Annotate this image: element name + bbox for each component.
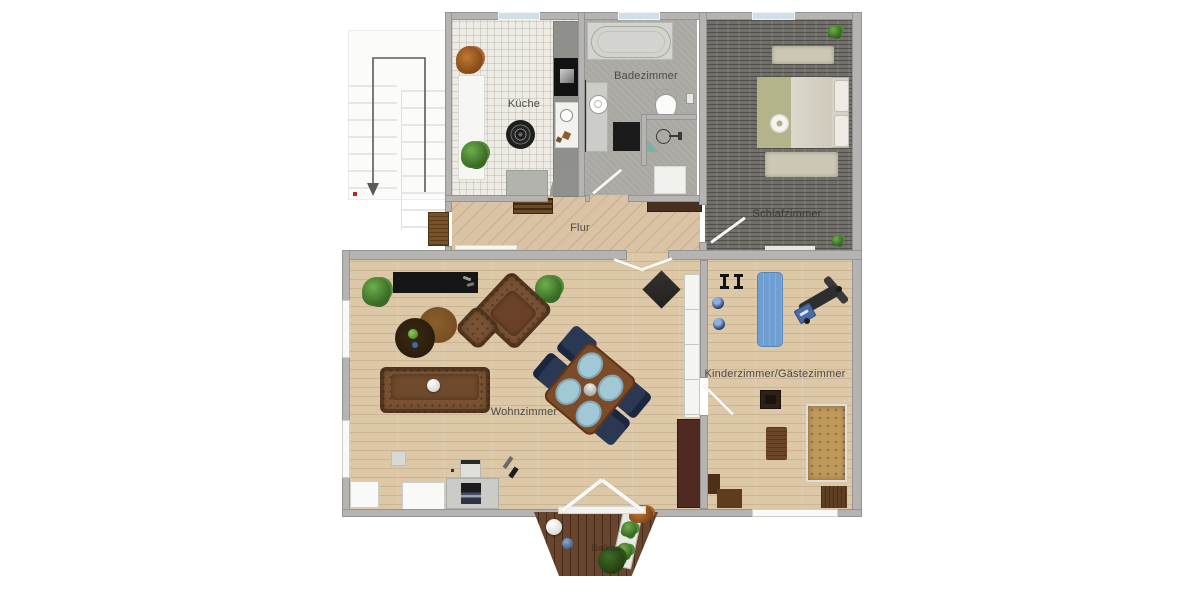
bed-blanket (757, 77, 791, 148)
kidsroom-doormat (821, 486, 847, 508)
dumbbell-icon (734, 274, 743, 289)
bathtub-inner-rim (597, 31, 665, 53)
room-label-wohnzimmer: Wohnzimmer (491, 406, 558, 418)
room-label-kinderzimmer: Kinderzimmer/Gästezimmer (704, 368, 845, 380)
bath-mat-black (613, 122, 640, 151)
small-floor-object (451, 469, 454, 472)
kitchen-plant-icon (461, 141, 488, 168)
dumbbell-icon (720, 274, 729, 289)
window-living-left (342, 300, 350, 358)
machine-wheel (836, 286, 842, 292)
window-sill (350, 481, 379, 508)
wall-left-upper (445, 12, 452, 212)
bedroom-rug-top (772, 46, 834, 64)
shower-wall-vertical (641, 114, 647, 166)
wall-shelf-white (684, 274, 700, 418)
bathtub-surround (587, 22, 673, 60)
balcony-ball-blue (562, 538, 573, 549)
bedroom-plant-small-icon (832, 235, 843, 246)
bathtub (591, 26, 671, 58)
wall-middle-band (342, 250, 627, 260)
wall-kitchen-bottom (445, 195, 548, 202)
double-bed (757, 77, 849, 148)
bedroom-plant-icon (828, 25, 842, 38)
sink-basin (560, 109, 573, 122)
floor-stool-small (391, 451, 406, 466)
daybed-tufted (806, 404, 847, 482)
wall-middle-band (668, 250, 862, 260)
bathroom-counter (586, 82, 608, 152)
kidsroom-rug (766, 427, 787, 460)
balcony-ball-white (546, 519, 562, 535)
desk-chair (460, 459, 481, 478)
dried-plant-icon (456, 46, 483, 74)
kitchen-sink (555, 102, 580, 148)
remote-control (467, 282, 475, 287)
round-rug-dark (395, 318, 435, 358)
blue-ball (412, 342, 418, 348)
exercise-machine (790, 278, 852, 340)
oven-window (560, 69, 574, 83)
shower-head-icon (656, 128, 684, 146)
kitchen-mat (506, 170, 548, 196)
exercise-ball (712, 297, 724, 309)
bed-duvet (791, 77, 832, 148)
floor-plan: Küche Badezimmer Schlafzimmer Flur Wohnz… (0, 0, 1200, 600)
wall-living-kids (700, 260, 708, 378)
shower-wall-horizontal (641, 114, 697, 120)
bedroom-rug-bottom (765, 152, 838, 177)
tv-sideboard (393, 272, 478, 293)
bread-items (562, 131, 571, 140)
bed-pillow (834, 80, 849, 112)
knife-object (504, 456, 518, 480)
exercise-mat-blue (757, 272, 783, 347)
window-kitchen (498, 12, 540, 20)
machine-wheel (804, 318, 810, 324)
wall-right (852, 12, 862, 517)
sofa-decor-ball (427, 379, 440, 392)
wall-living-kids (700, 415, 708, 509)
bathroom-sink (589, 95, 608, 114)
window-kids-bottom (752, 509, 838, 517)
window-sill (402, 482, 445, 510)
sofa (380, 367, 490, 413)
bed-flower-decor (770, 114, 789, 133)
room-label-badezimmer: Badezimmer (614, 70, 678, 82)
staircase (348, 30, 446, 200)
window-living-left (342, 420, 350, 478)
exercise-ball (713, 318, 725, 330)
stairs-start-marker (353, 192, 357, 196)
room-label-balkon: Balkon (592, 543, 621, 553)
bed-pillow (834, 115, 849, 147)
table-centerpiece (581, 381, 599, 399)
room-label-schlafzimmer: Schlafzimmer (752, 208, 821, 220)
planter-greens (620, 520, 639, 539)
audio-device (461, 483, 481, 504)
room-label-flur: Flur (570, 222, 590, 234)
side-table-dark (760, 390, 781, 409)
stairs-direction-arrow (348, 30, 446, 200)
step-stool (717, 489, 742, 508)
balcony-door-sill (558, 506, 646, 514)
green-ball (408, 329, 418, 339)
window-bedroom (752, 12, 795, 20)
wall-bath-bottom (628, 195, 700, 202)
wall-kitchen-bath (578, 12, 585, 197)
round-mandala-rug (506, 120, 535, 149)
entrance-doormat (428, 212, 449, 246)
toilet-paper-holder (686, 93, 694, 104)
bath-mat-white (654, 166, 686, 194)
livingroom-plant-left-icon (362, 277, 391, 306)
room-label-kueche: Küche (508, 98, 540, 110)
window-bathroom (618, 12, 660, 20)
sink-drain (594, 100, 602, 108)
wall-bath-bedroom (699, 12, 707, 205)
stove-cooktop (554, 58, 580, 96)
wall-bath-bottom (585, 195, 590, 202)
remote-control (463, 276, 472, 282)
